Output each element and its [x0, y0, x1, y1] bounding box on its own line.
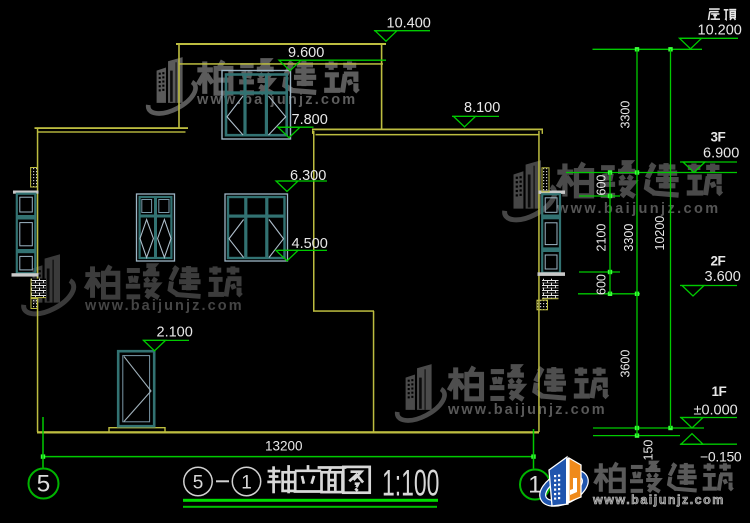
svg-text:150: 150	[642, 440, 656, 461]
svg-text:600: 600	[595, 175, 609, 196]
svg-text:5: 5	[37, 471, 51, 498]
svg-text:4.500: 4.500	[292, 236, 328, 252]
svg-text:1: 1	[241, 473, 252, 494]
svg-text:9.600: 9.600	[288, 45, 324, 61]
svg-text:8.100: 8.100	[464, 100, 500, 116]
svg-text:600: 600	[595, 274, 609, 295]
svg-text:7.800: 7.800	[292, 112, 328, 128]
svg-text:www.baijunjz.com: www.baijunjz.com	[592, 493, 725, 507]
svg-text:6.300: 6.300	[290, 168, 326, 184]
svg-text:2100: 2100	[595, 224, 609, 252]
svg-text:3300: 3300	[619, 101, 633, 129]
svg-text:3300: 3300	[622, 224, 636, 252]
svg-text:−0.150: −0.150	[700, 449, 742, 465]
svg-text:www.baijunjz.com: www.baijunjz.com	[84, 298, 244, 314]
svg-text:3.600: 3.600	[705, 269, 741, 285]
svg-text:±0.000: ±0.000	[694, 403, 738, 419]
svg-text:10.400: 10.400	[387, 16, 431, 32]
svg-text:13200: 13200	[265, 439, 303, 454]
svg-text:6.900: 6.900	[703, 146, 739, 162]
svg-text:2F: 2F	[711, 254, 726, 269]
svg-text:www.baijunjz.com: www.baijunjz.com	[556, 201, 721, 217]
svg-text:10.200: 10.200	[698, 23, 742, 39]
svg-text:10200: 10200	[653, 216, 667, 251]
svg-text:3600: 3600	[619, 350, 633, 378]
svg-text:2.100: 2.100	[157, 325, 193, 341]
svg-text:1:100: 1:100	[382, 462, 439, 504]
svg-text:5: 5	[193, 473, 204, 494]
svg-text:www.baijunjz.com: www.baijunjz.com	[447, 402, 607, 418]
svg-text:3F: 3F	[711, 130, 726, 145]
svg-text:1F: 1F	[712, 384, 727, 399]
